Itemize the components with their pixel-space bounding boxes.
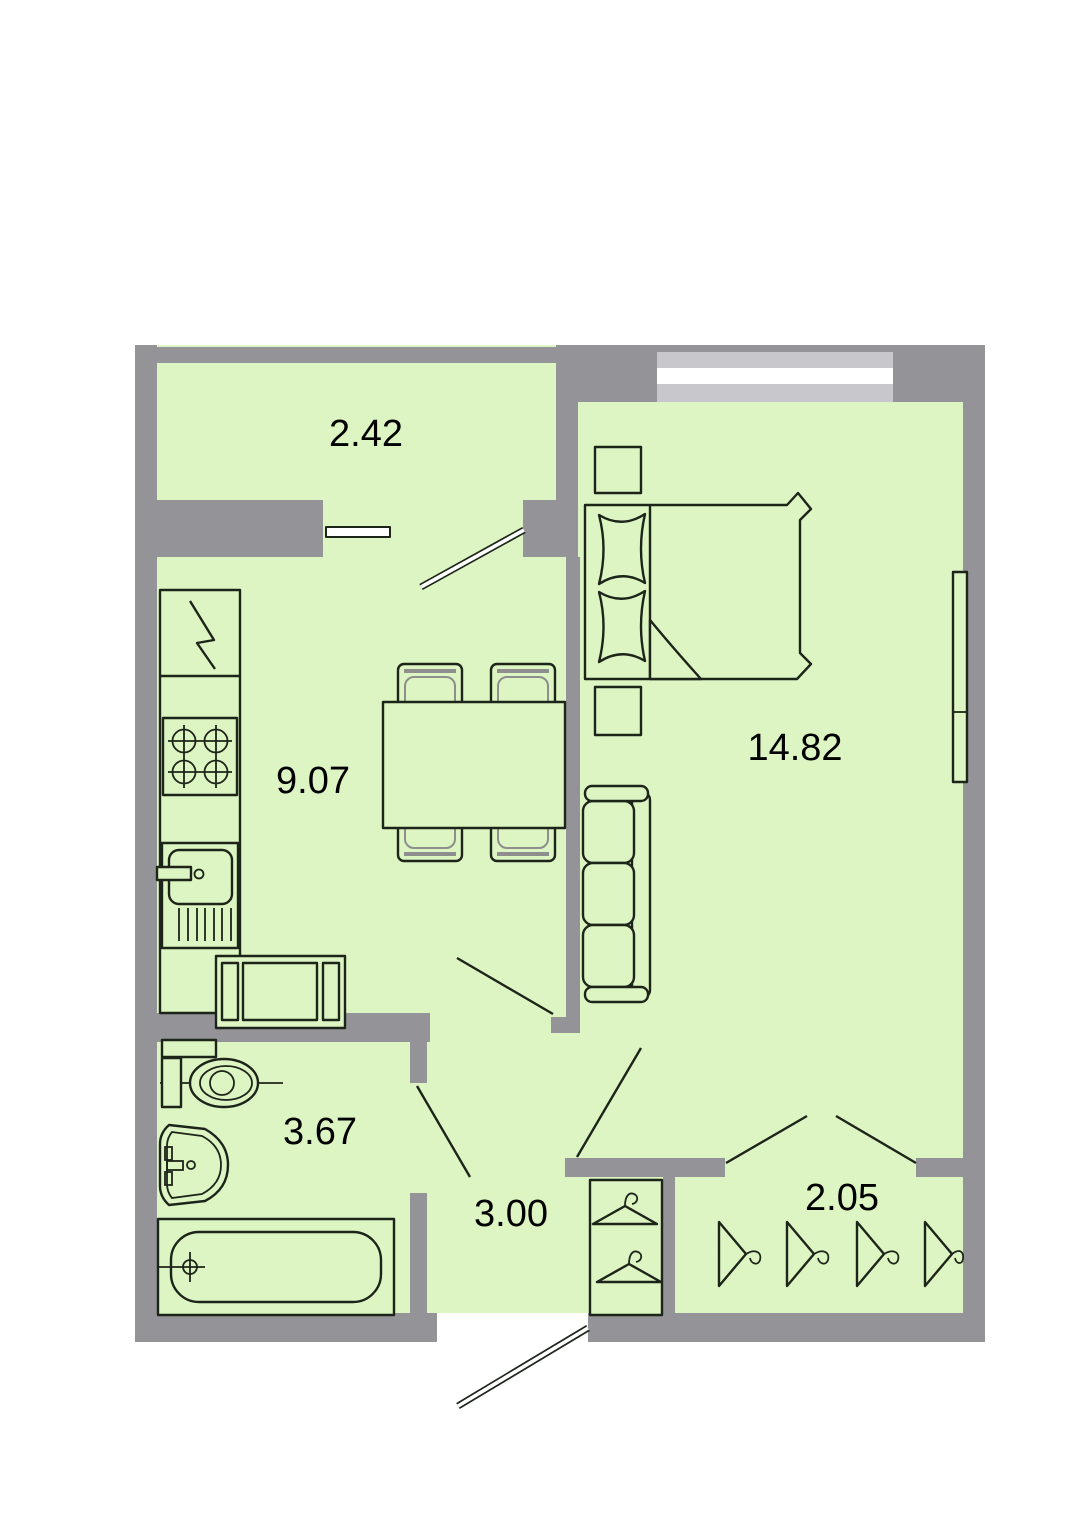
wall-bathroom-right-lower xyxy=(410,1193,427,1315)
pillow-icon xyxy=(599,514,645,584)
wall-balcony-bedroom-divider xyxy=(556,345,578,557)
wall-bathroom-right-upper xyxy=(410,1026,427,1083)
dining-table-icon xyxy=(383,702,565,828)
sofa-cushion xyxy=(583,863,634,925)
sofa-cushion xyxy=(583,801,634,863)
bedroom-window-glass-icon xyxy=(657,368,893,384)
kitchen-sink-icon xyxy=(157,843,238,948)
wall-right-exterior xyxy=(963,345,985,1342)
radiator-icon xyxy=(953,572,967,782)
hallway-closet xyxy=(590,1180,662,1315)
wall-top-balcony xyxy=(135,347,558,363)
floor-plan-canvas: 2.42 9.07 14.82 3.67 3.00 2.05 xyxy=(0,0,1085,1536)
kitchen-area-label: 9.07 xyxy=(276,760,350,802)
wall-bedroom-hallway xyxy=(565,1158,725,1177)
kitchen-balcony-window-icon xyxy=(326,527,390,537)
wall-kitchen-door-jamb xyxy=(551,1017,566,1033)
bathroom-area-label: 3.67 xyxy=(283,1111,357,1153)
floor-plan-page: 2.42 9.07 14.82 3.67 3.00 2.05 xyxy=(0,0,1085,1536)
wall-closet-wardrobe xyxy=(663,1177,675,1315)
wall-kitchen-bedroom xyxy=(566,557,580,1033)
stove-icon xyxy=(163,718,237,795)
sink-faucet-icon xyxy=(157,867,191,880)
toilet-tank xyxy=(162,1040,216,1057)
nightstand-icon xyxy=(595,447,641,493)
sofa-cushion xyxy=(583,925,634,987)
nightstand-icon xyxy=(595,687,641,735)
hallway-area-label: 3.00 xyxy=(474,1193,548,1235)
wardrobe-area-label: 2.05 xyxy=(805,1177,879,1219)
bedroom-area-label: 14.82 xyxy=(747,727,842,769)
kitchen-counter xyxy=(160,590,240,1013)
sofa-armrest xyxy=(585,987,648,1002)
pillow-icon xyxy=(599,591,645,662)
sofa-icon xyxy=(583,786,650,1002)
sofa-armrest xyxy=(585,786,648,801)
wall-balcony-kitchen-left xyxy=(135,500,323,557)
bathtub-icon xyxy=(158,1219,394,1315)
balcony-area-label: 2.42 xyxy=(329,413,403,455)
double-bed-icon xyxy=(585,493,811,679)
wall-wardrobe-right-segment xyxy=(916,1158,965,1177)
kitchen-bench-icon xyxy=(216,956,345,1028)
wall-left-exterior xyxy=(135,345,157,1342)
